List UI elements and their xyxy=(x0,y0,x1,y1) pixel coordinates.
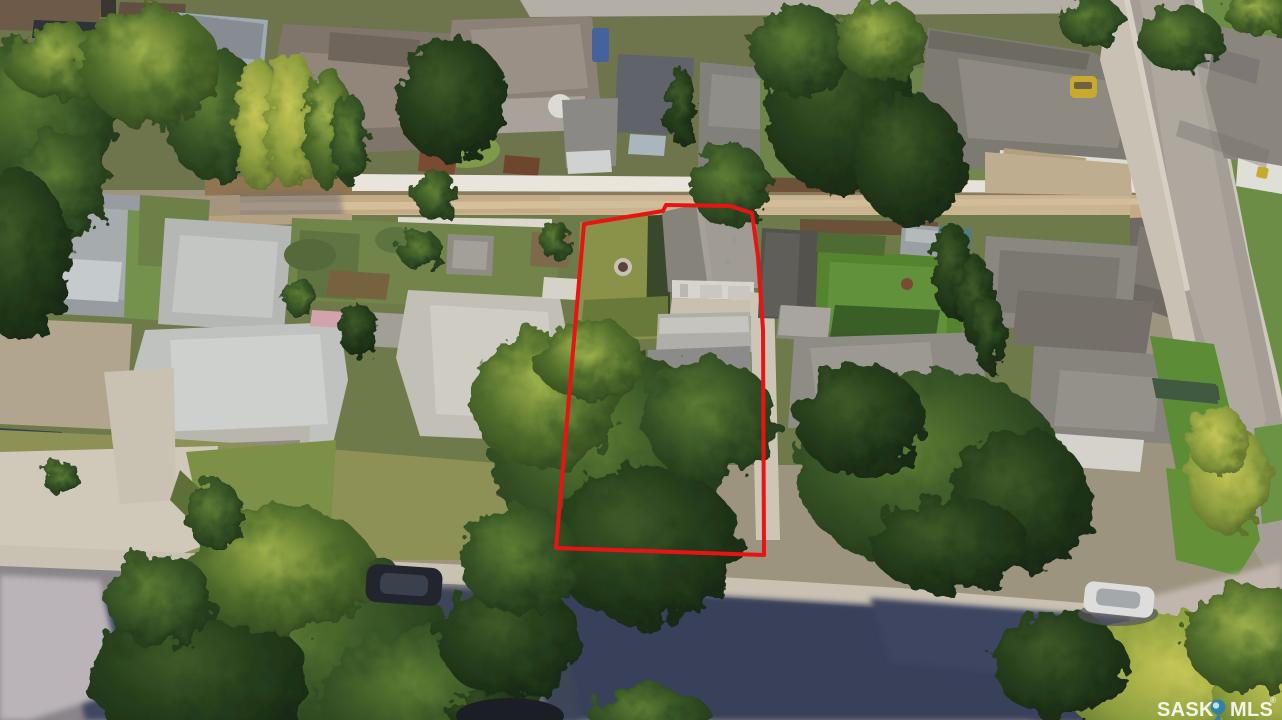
svg-text:MLS: MLS xyxy=(1230,699,1273,720)
svg-text:SASK: SASK xyxy=(1157,699,1214,720)
svg-text:®: ® xyxy=(1270,696,1276,705)
